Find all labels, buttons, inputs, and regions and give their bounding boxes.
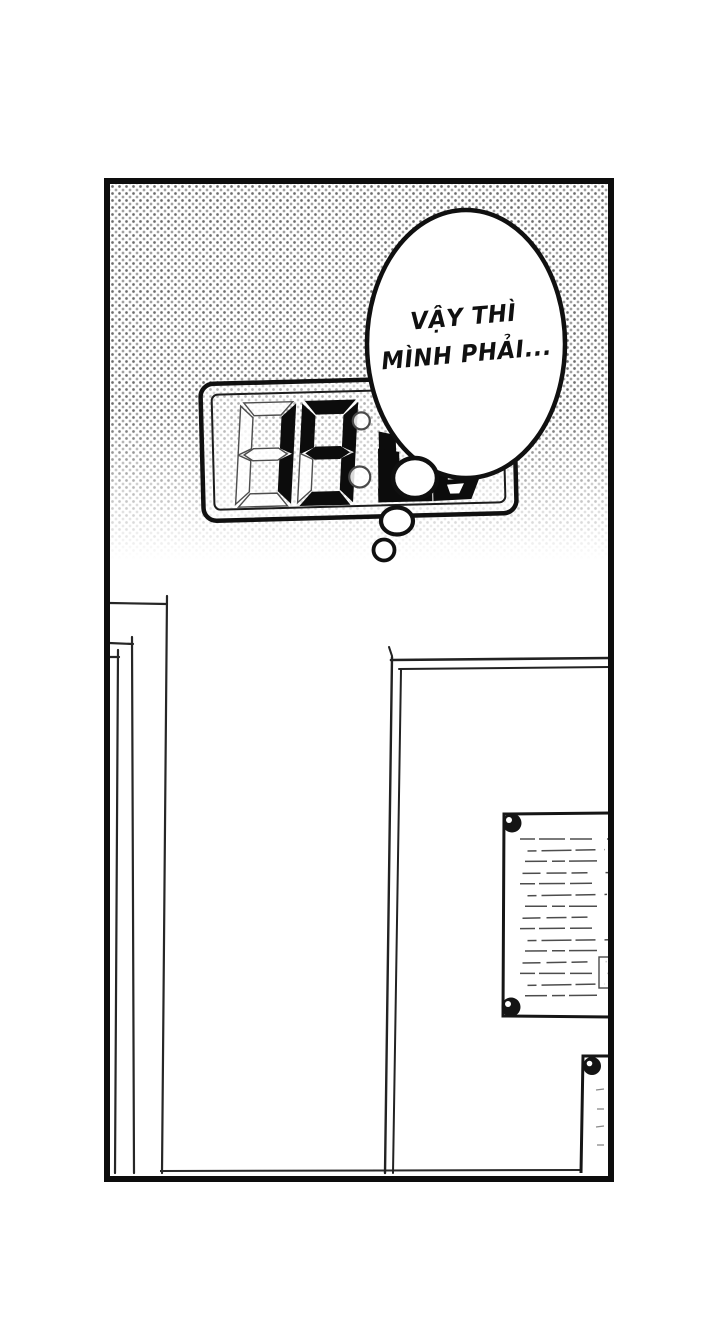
door-frame-line xyxy=(109,643,133,644)
door-frame-left xyxy=(109,596,167,1173)
door-frame-line xyxy=(399,667,610,669)
thought-bubble-tail-circle xyxy=(381,508,413,535)
panel-line-art xyxy=(0,0,720,1326)
access-panel xyxy=(581,1056,612,1173)
access-panel-ticks xyxy=(596,1089,604,1145)
thought-bubble-text: VẬY THÌ MÌNH PHẢI... xyxy=(374,291,556,380)
door-frame-line xyxy=(162,596,167,1173)
screw-icon xyxy=(583,1057,601,1075)
door-frame-line xyxy=(132,637,134,1173)
door-frame-line xyxy=(109,603,167,604)
screw-icon xyxy=(503,814,522,833)
screw-icon xyxy=(502,998,521,1017)
door-frame-line xyxy=(115,650,118,1173)
thought-bubble-tail-circle xyxy=(393,458,437,498)
door-frame-line xyxy=(391,658,610,660)
page-background: VẬY THÌ MÌNH PHẢI... xyxy=(0,0,720,1326)
floor-line xyxy=(160,1170,580,1171)
door-frame-line xyxy=(385,657,392,1173)
door-frame-line xyxy=(389,647,392,656)
thought-bubble-tail-circle xyxy=(374,540,395,561)
vent-outline xyxy=(503,813,611,1017)
vent-grille xyxy=(502,813,613,1017)
door-frame-line xyxy=(393,670,401,1173)
